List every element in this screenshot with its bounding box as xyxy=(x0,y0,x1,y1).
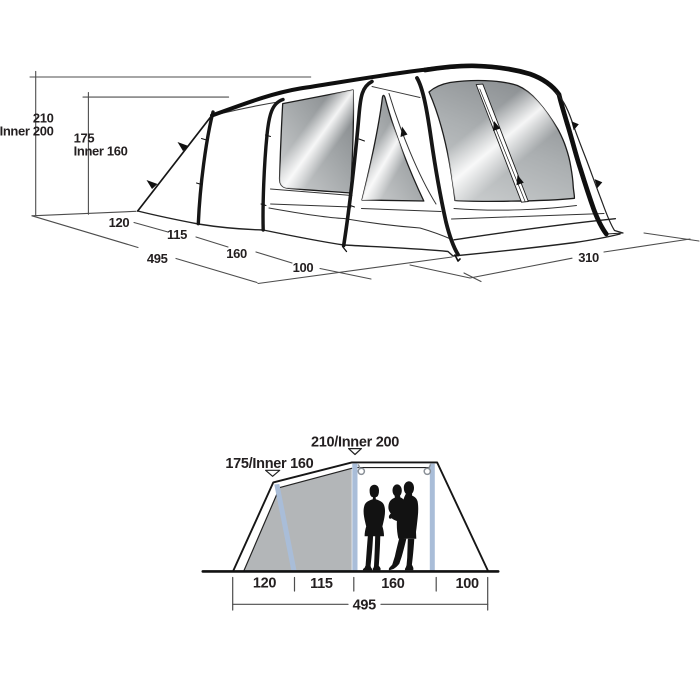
svg-text:115: 115 xyxy=(167,227,187,242)
svg-text:100: 100 xyxy=(455,576,479,592)
svg-text:160: 160 xyxy=(226,246,247,261)
svg-text:115: 115 xyxy=(310,576,333,592)
svg-text:210/Inner 200: 210/Inner 200 xyxy=(311,434,399,450)
svg-text:Inner 160: Inner 160 xyxy=(74,144,128,159)
svg-text:Inner 200: Inner 200 xyxy=(0,123,54,138)
svg-text:100: 100 xyxy=(293,260,314,275)
svg-text:495: 495 xyxy=(353,597,377,613)
svg-text:495: 495 xyxy=(147,251,168,266)
svg-text:120: 120 xyxy=(253,576,277,592)
svg-text:120: 120 xyxy=(109,215,130,230)
svg-text:160: 160 xyxy=(381,576,405,592)
svg-text:175/Inner 160: 175/Inner 160 xyxy=(225,456,313,472)
svg-text:310: 310 xyxy=(578,250,599,265)
